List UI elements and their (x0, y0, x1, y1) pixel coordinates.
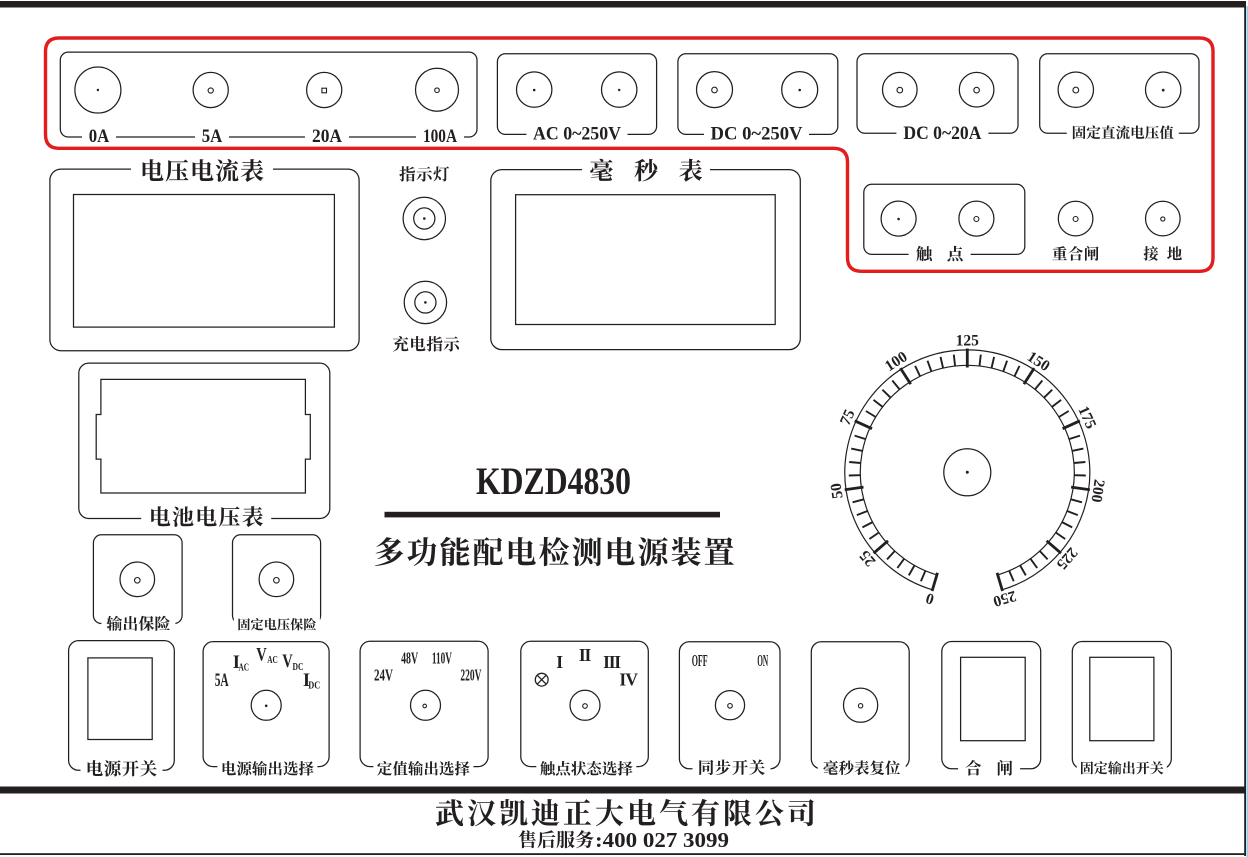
svg-text:48V: 48V (401, 649, 418, 668)
svg-text:0A: 0A (89, 126, 110, 147)
svg-text::400 027 3099: :400 027 3099 (595, 828, 729, 852)
svg-text:II: II (579, 645, 592, 665)
svg-text:100A: 100A (423, 126, 457, 147)
svg-text:ON: ON (757, 651, 768, 670)
svg-text:I: I (556, 652, 563, 672)
svg-text:110V: 110V (432, 649, 452, 668)
svg-text:200: 200 (1087, 478, 1107, 504)
svg-text:DC 0~250V: DC 0~250V (711, 124, 803, 145)
svg-text:AC 0~250V: AC 0~250V (533, 124, 621, 145)
svg-text:DC 0~20A: DC 0~20A (903, 123, 981, 144)
svg-text:AC: AC (239, 661, 250, 673)
svg-text:OFF: OFF (692, 651, 708, 670)
svg-text:20A: 20A (312, 126, 342, 147)
svg-text:125: 125 (956, 332, 980, 349)
svg-text:220V: 220V (460, 665, 481, 684)
svg-text:V: V (256, 645, 267, 665)
svg-text:IV: IV (619, 670, 638, 690)
svg-text:5A: 5A (215, 671, 229, 691)
svg-text:DC: DC (308, 679, 320, 691)
svg-text:24V: 24V (374, 665, 393, 684)
svg-text:50: 50 (828, 482, 847, 500)
svg-text:5A: 5A (202, 126, 223, 147)
svg-text:AC: AC (267, 654, 278, 666)
svg-text:DC: DC (293, 661, 304, 673)
svg-text:KDZD4830: KDZD4830 (476, 460, 631, 503)
